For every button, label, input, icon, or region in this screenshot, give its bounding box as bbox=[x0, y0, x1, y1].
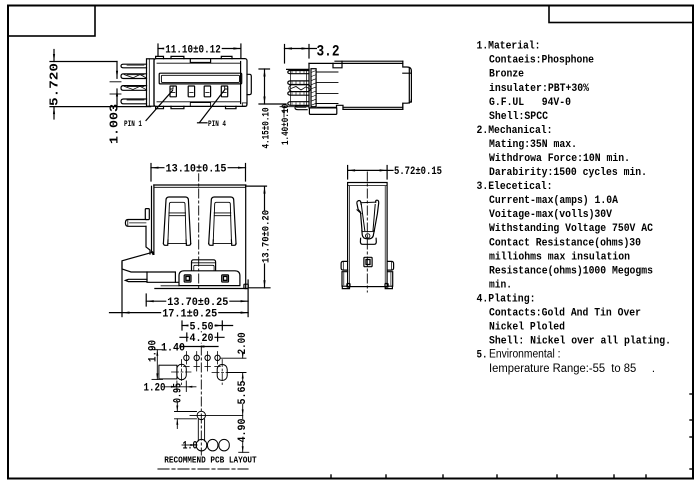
svg-text:Darabirity:1500 cycles min.: Darabirity:1500 cycles min. bbox=[489, 167, 647, 179]
svg-text:Voitage-max(volls)30V: Voitage-max(volls)30V bbox=[489, 209, 612, 221]
svg-text:5.65: 5.65 bbox=[237, 380, 249, 404]
svg-text:5.50: 5.50 bbox=[190, 321, 214, 333]
svg-text:2.00: 2.00 bbox=[237, 332, 249, 354]
svg-text:Resistance(ohms)1000 Megogms: Resistance(ohms)1000 Megogms bbox=[489, 265, 653, 277]
svg-text:Shell:SPCC: Shell:SPCC bbox=[489, 111, 548, 123]
svg-text:4.15±0.10: 4.15±0.10 bbox=[261, 108, 273, 149]
svg-text:5.: 5. bbox=[477, 350, 488, 362]
svg-text:Withdrowa Force:10N min.: Withdrowa Force:10N min. bbox=[489, 153, 630, 165]
svg-text:Contaeis:Phosphone: Contaeis:Phosphone bbox=[489, 55, 594, 67]
svg-text:Shell: Nickel over all plating: Shell: Nickel over all plating. bbox=[489, 336, 671, 348]
svg-text:RECOMMEND PCB LAYOUT: RECOMMEND PCB LAYOUT bbox=[164, 454, 257, 465]
svg-text:milliohms max insulation: milliohms max insulation bbox=[489, 251, 630, 263]
svg-text:Mating:35N max.: Mating:35N max. bbox=[489, 139, 577, 151]
svg-text:1.0: 1.0 bbox=[183, 440, 198, 452]
svg-text:Withstanding Voltage 750V AC: Withstanding Voltage 750V AC bbox=[489, 223, 653, 235]
svg-text:17.1±0.25: 17.1±0.25 bbox=[162, 308, 217, 320]
svg-text:4.20: 4.20 bbox=[190, 333, 214, 345]
svg-text:Iemperature Range:-55 to 85: Iemperature Range:-55 to 85 . bbox=[489, 363, 655, 375]
svg-text:min.: min. bbox=[489, 280, 512, 292]
svg-text:Nickel Ploled: Nickel Ploled bbox=[489, 322, 565, 334]
svg-text:1.40±0.10: 1.40±0.10 bbox=[280, 104, 292, 145]
svg-text:5.720: 5.720 bbox=[48, 63, 62, 106]
svg-text:4.Plating:: 4.Plating: bbox=[477, 294, 536, 306]
svg-text:1.90: 1.90 bbox=[148, 340, 160, 362]
svg-text:1.Material:: 1.Material: bbox=[477, 41, 541, 53]
svg-text:4.90: 4.90 bbox=[237, 419, 249, 443]
svg-text:13.70±0.25: 13.70±0.25 bbox=[167, 297, 228, 309]
svg-text:13.70±0.20: 13.70±0.20 bbox=[260, 210, 272, 263]
svg-text:Environmental :: Environmental : bbox=[489, 349, 561, 361]
svg-text:insulater:PBT+30%: insulater:PBT+30% bbox=[489, 83, 589, 95]
svg-text:2.Mechanical:: 2.Mechanical: bbox=[477, 125, 553, 137]
svg-text:Contact Resistance(ohms)30: Contact Resistance(ohms)30 bbox=[489, 237, 641, 249]
svg-text:Bronze: Bronze bbox=[489, 69, 524, 81]
svg-text:1.003: 1.003 bbox=[108, 104, 122, 144]
svg-text:1.40: 1.40 bbox=[161, 342, 185, 354]
svg-text:3.2: 3.2 bbox=[317, 43, 340, 61]
svg-text:Current-max(amps) 1.0A: Current-max(amps) 1.0A bbox=[489, 195, 618, 207]
svg-text:PIN 4: PIN 4 bbox=[208, 120, 226, 129]
svg-text:1.20: 1.20 bbox=[144, 383, 166, 395]
svg-text:PIN 1: PIN 1 bbox=[124, 120, 142, 129]
svg-text:Contacts:Gold And Tin Over: Contacts:Gold And Tin Over bbox=[489, 308, 641, 320]
svg-text:G.F.UL 94V-0: G.F.UL 94V-0 bbox=[489, 97, 571, 109]
svg-text:13.10±0.15: 13.10±0.15 bbox=[166, 164, 227, 176]
svg-text:3.Elecetical:: 3.Elecetical: bbox=[477, 181, 553, 193]
svg-text:5.72±0.15: 5.72±0.15 bbox=[394, 166, 442, 178]
svg-text:11.10±0.12: 11.10±0.12 bbox=[165, 44, 221, 56]
svg-text:0.95: 0.95 bbox=[173, 383, 185, 403]
